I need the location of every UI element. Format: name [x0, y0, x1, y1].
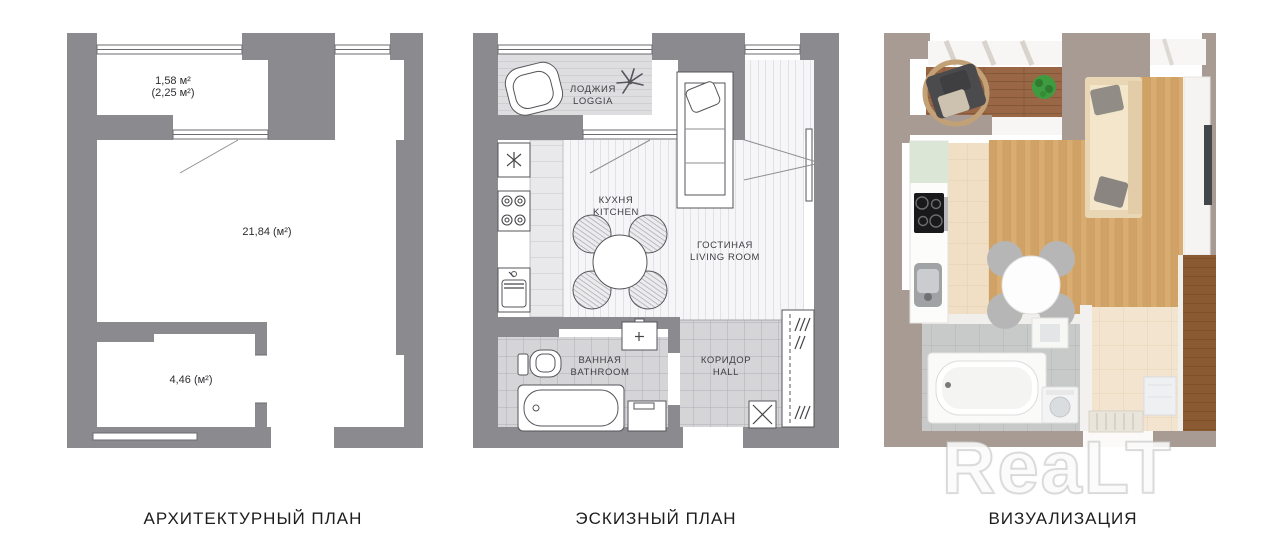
bathroom-label-ru: ВАННАЯ [579, 355, 622, 366]
fridge-icon [498, 143, 530, 177]
stove-icon [498, 191, 530, 231]
kitchen-counter [530, 140, 563, 317]
caption-visualization: ВИЗУАЛИЗАЦИЯ [897, 507, 1229, 531]
hall-label-en: HALL [713, 367, 739, 378]
walls [67, 33, 423, 448]
render-bathtub [928, 353, 1046, 423]
living-label-ru: ГОСТИНАЯ [697, 240, 753, 251]
render-cooktop [914, 193, 948, 233]
render-wardrobe [1183, 255, 1216, 431]
render-fridge-cabinet [910, 141, 948, 183]
sofa [677, 72, 733, 208]
toilet-icon [518, 350, 561, 377]
floor-plan-figure: 1,58 м² (2,25 м²) 21,84 (м²) 4,46 (м²) [0, 0, 1280, 550]
render-bathroom-sink [1032, 318, 1068, 348]
main-room-area-label: 21,84 (м²) [242, 226, 291, 238]
kitchen-label-en: KITCHEN [593, 207, 639, 218]
bathtub-icon [518, 385, 624, 431]
sketch-plan: ЛОДЖИЯ LOGGIA КУХНЯ KITCHEN ГОСТИНАЯ LIV… [473, 33, 839, 448]
small-room-area-label: 4,46 (м²) [169, 374, 212, 386]
render-plant [1032, 75, 1056, 99]
balcony-area-label: 1,58 м² [155, 75, 191, 87]
architectural-plan: 1,58 м² (2,25 м²) 21,84 (м²) 4,46 (м²) [67, 33, 423, 448]
render-kitchen-counter [910, 141, 948, 323]
caption-architectural-plan: АРХИТЕКТУРНЫЙ ПЛАН [75, 507, 431, 531]
wardrobe [782, 310, 814, 427]
realt-watermark: ReaLT [942, 425, 1173, 510]
render-washing-machine [1042, 387, 1078, 423]
loggia-label-en: LOGGIA [573, 96, 613, 107]
visualization-render [884, 33, 1216, 447]
caption-sketch-plan: ЭСКИЗНЫЙ ПЛАН [473, 507, 839, 531]
living-upper-floor [745, 60, 814, 140]
windows [93, 45, 390, 440]
hall-label-ru: КОРИДОР [701, 355, 751, 366]
loggia-label-ru: ЛОДЖИЯ [570, 84, 616, 95]
kitchen-label-ru: КУХНЯ [599, 195, 634, 206]
washing-machine-icon [628, 401, 666, 431]
render-tv [1204, 125, 1212, 205]
bathroom-sink-icon [622, 319, 657, 350]
balcony-area-coeff-label: (2,25 м²) [151, 87, 194, 99]
kitchen-sink-icon [498, 268, 530, 312]
render-sofa [1085, 77, 1142, 218]
living-label-en: LIVING ROOM [690, 252, 760, 263]
dining-table [593, 235, 647, 289]
kitchen-tile-floor [947, 143, 989, 318]
render-shoe-cabinet [1144, 377, 1176, 415]
render-kitchen-sink [914, 263, 942, 307]
hall-cabinet-icon [749, 401, 776, 428]
balcony-door-leader-line [180, 140, 238, 173]
bathroom-label-en: BATHROOM [571, 367, 630, 378]
